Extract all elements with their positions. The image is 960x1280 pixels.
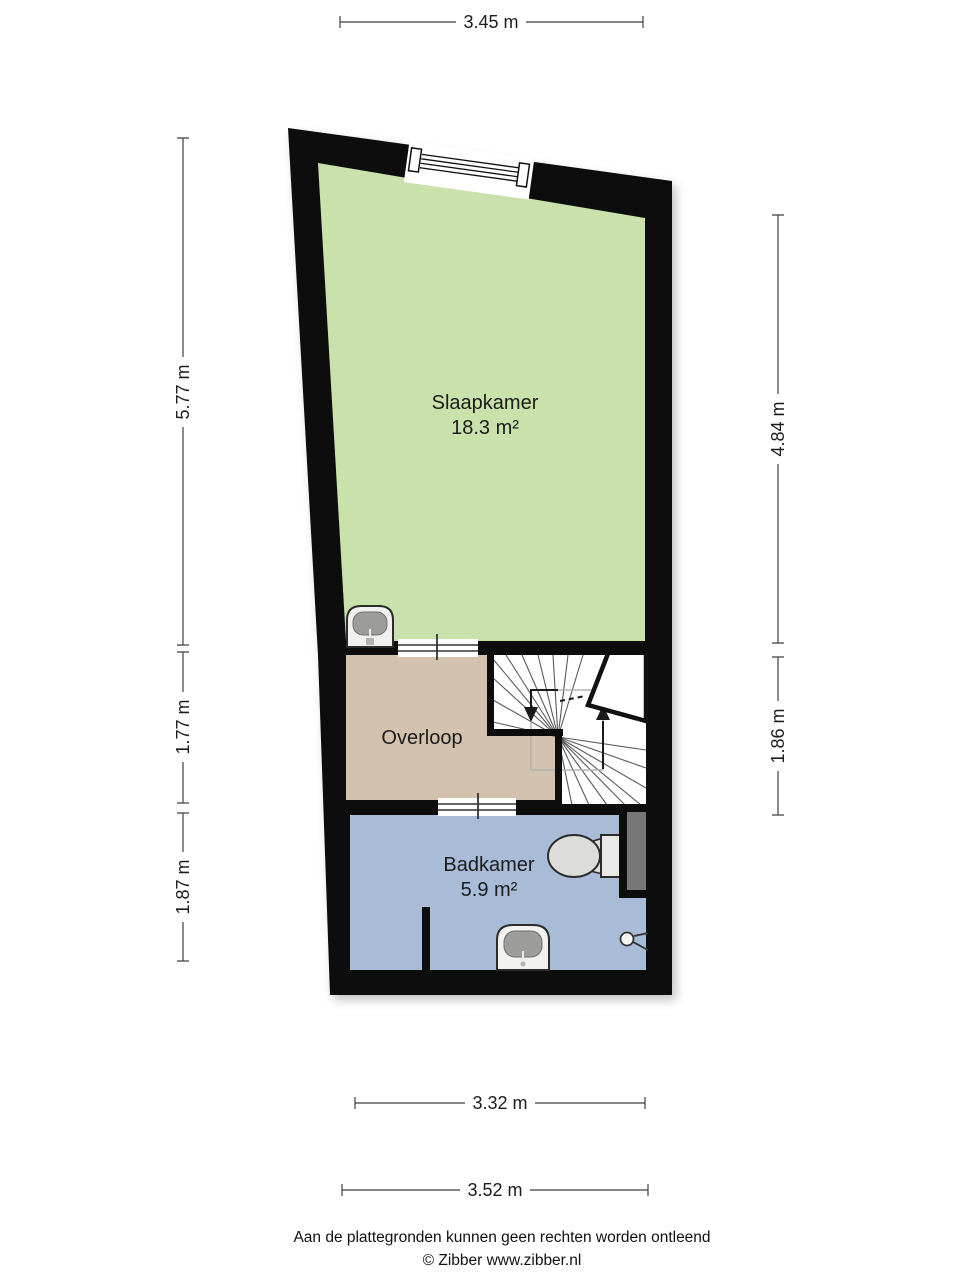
stair-wall-right bbox=[555, 729, 562, 806]
room-slaapkamer-floor bbox=[318, 163, 645, 641]
dim-line-right-upper bbox=[772, 215, 784, 643]
toilet-icon bbox=[548, 835, 623, 877]
footer: Aan de plattegronden kunnen geen rechten… bbox=[42, 1226, 960, 1272]
sink-slaapkamer-icon bbox=[347, 606, 393, 647]
dim-line-bottom-upper bbox=[355, 1097, 645, 1109]
dim-line-top bbox=[340, 16, 643, 28]
stair-wall-left bbox=[487, 650, 494, 736]
dim-line-bottom-lower bbox=[342, 1184, 648, 1196]
duct-panel bbox=[619, 812, 646, 898]
dim-line-left-upper bbox=[177, 138, 189, 645]
stair-wall-mid bbox=[487, 729, 563, 736]
dim-line-right-lower bbox=[772, 657, 784, 815]
footer-disclaimer: Aan de plattegronden kunnen geen rechten… bbox=[42, 1226, 960, 1249]
dim-line-left-middle bbox=[177, 652, 189, 803]
dim-line-left-lower bbox=[177, 813, 189, 961]
floorplan-page: { "plan": { "rooms": [ { "id": "slaapkam… bbox=[0, 0, 960, 1280]
shower-wall-stub bbox=[422, 907, 430, 970]
footer-copyright: © Zibber www.zibber.nl bbox=[42, 1249, 960, 1272]
floorplan-canvas bbox=[0, 0, 960, 1280]
sink-badkamer-icon bbox=[497, 925, 549, 970]
